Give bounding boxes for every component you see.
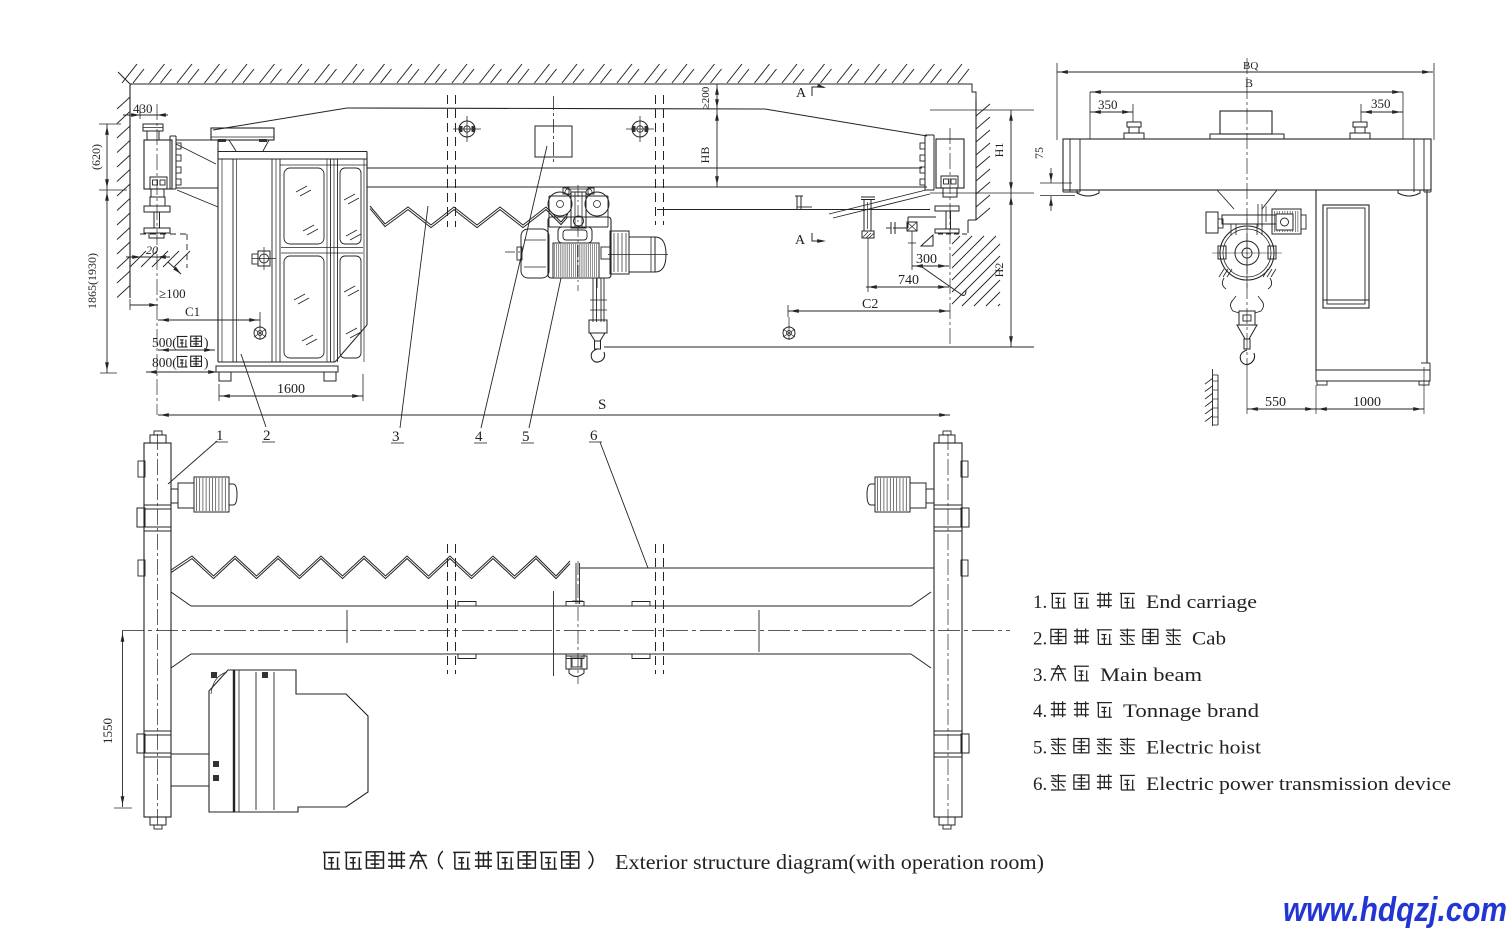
svg-text:430: 430 bbox=[133, 101, 153, 116]
svg-text:550: 550 bbox=[1265, 395, 1286, 410]
svg-text:HB: HB bbox=[698, 147, 712, 164]
svg-text:End carriage: End carriage bbox=[1146, 592, 1257, 613]
svg-text:1550: 1550 bbox=[100, 718, 115, 744]
svg-text:300: 300 bbox=[916, 252, 937, 267]
svg-text:Tonnage brand: Tonnage brand bbox=[1123, 701, 1260, 722]
svg-text:H1: H1 bbox=[992, 143, 1006, 158]
svg-text:Electric hoist: Electric hoist bbox=[1146, 738, 1262, 759]
svg-text:www.hdqzj.com: www.hdqzj.com bbox=[1283, 891, 1507, 929]
svg-text:5.: 5. bbox=[1033, 738, 1047, 759]
svg-text:BQ: BQ bbox=[1243, 60, 1258, 72]
svg-text:(620): (620) bbox=[89, 144, 103, 170]
svg-text:740: 740 bbox=[898, 273, 919, 288]
svg-text:6.: 6. bbox=[1033, 774, 1047, 795]
svg-text:): ) bbox=[204, 335, 209, 350]
svg-text:≥100: ≥100 bbox=[159, 286, 186, 301]
svg-text:A: A bbox=[795, 233, 806, 248]
svg-text:75: 75 bbox=[1032, 147, 1046, 159]
svg-text:≥200: ≥200 bbox=[700, 86, 712, 109]
svg-text:H2: H2 bbox=[992, 263, 1006, 278]
svg-text:2.: 2. bbox=[1033, 628, 1047, 649]
svg-text:350: 350 bbox=[1098, 97, 1118, 112]
svg-text:1.: 1. bbox=[1033, 592, 1047, 613]
svg-text:Main beam: Main beam bbox=[1100, 665, 1202, 686]
svg-text:800(: 800( bbox=[152, 355, 177, 370]
svg-text:C2: C2 bbox=[862, 297, 878, 312]
svg-text:4.: 4. bbox=[1033, 701, 1047, 722]
svg-text:B: B bbox=[1245, 76, 1253, 90]
svg-text:Exterior structure diagram(wit: Exterior structure diagram(with operatio… bbox=[615, 850, 1044, 874]
svg-text:1865(1930): 1865(1930) bbox=[85, 253, 99, 309]
svg-text:500(: 500( bbox=[152, 335, 177, 350]
svg-text:1600: 1600 bbox=[277, 382, 305, 397]
svg-text:A: A bbox=[796, 86, 807, 101]
svg-text:350: 350 bbox=[1371, 96, 1391, 111]
svg-text:S: S bbox=[598, 397, 606, 413]
svg-text:20: 20 bbox=[146, 243, 158, 257]
svg-text:Cab: Cab bbox=[1192, 628, 1226, 649]
svg-text:C1: C1 bbox=[185, 304, 200, 319]
svg-text:): ) bbox=[204, 355, 209, 370]
svg-text:3.: 3. bbox=[1033, 665, 1047, 686]
svg-text:1000: 1000 bbox=[1353, 395, 1381, 410]
svg-text:Electric power transmission de: Electric power transmission device bbox=[1146, 774, 1451, 795]
